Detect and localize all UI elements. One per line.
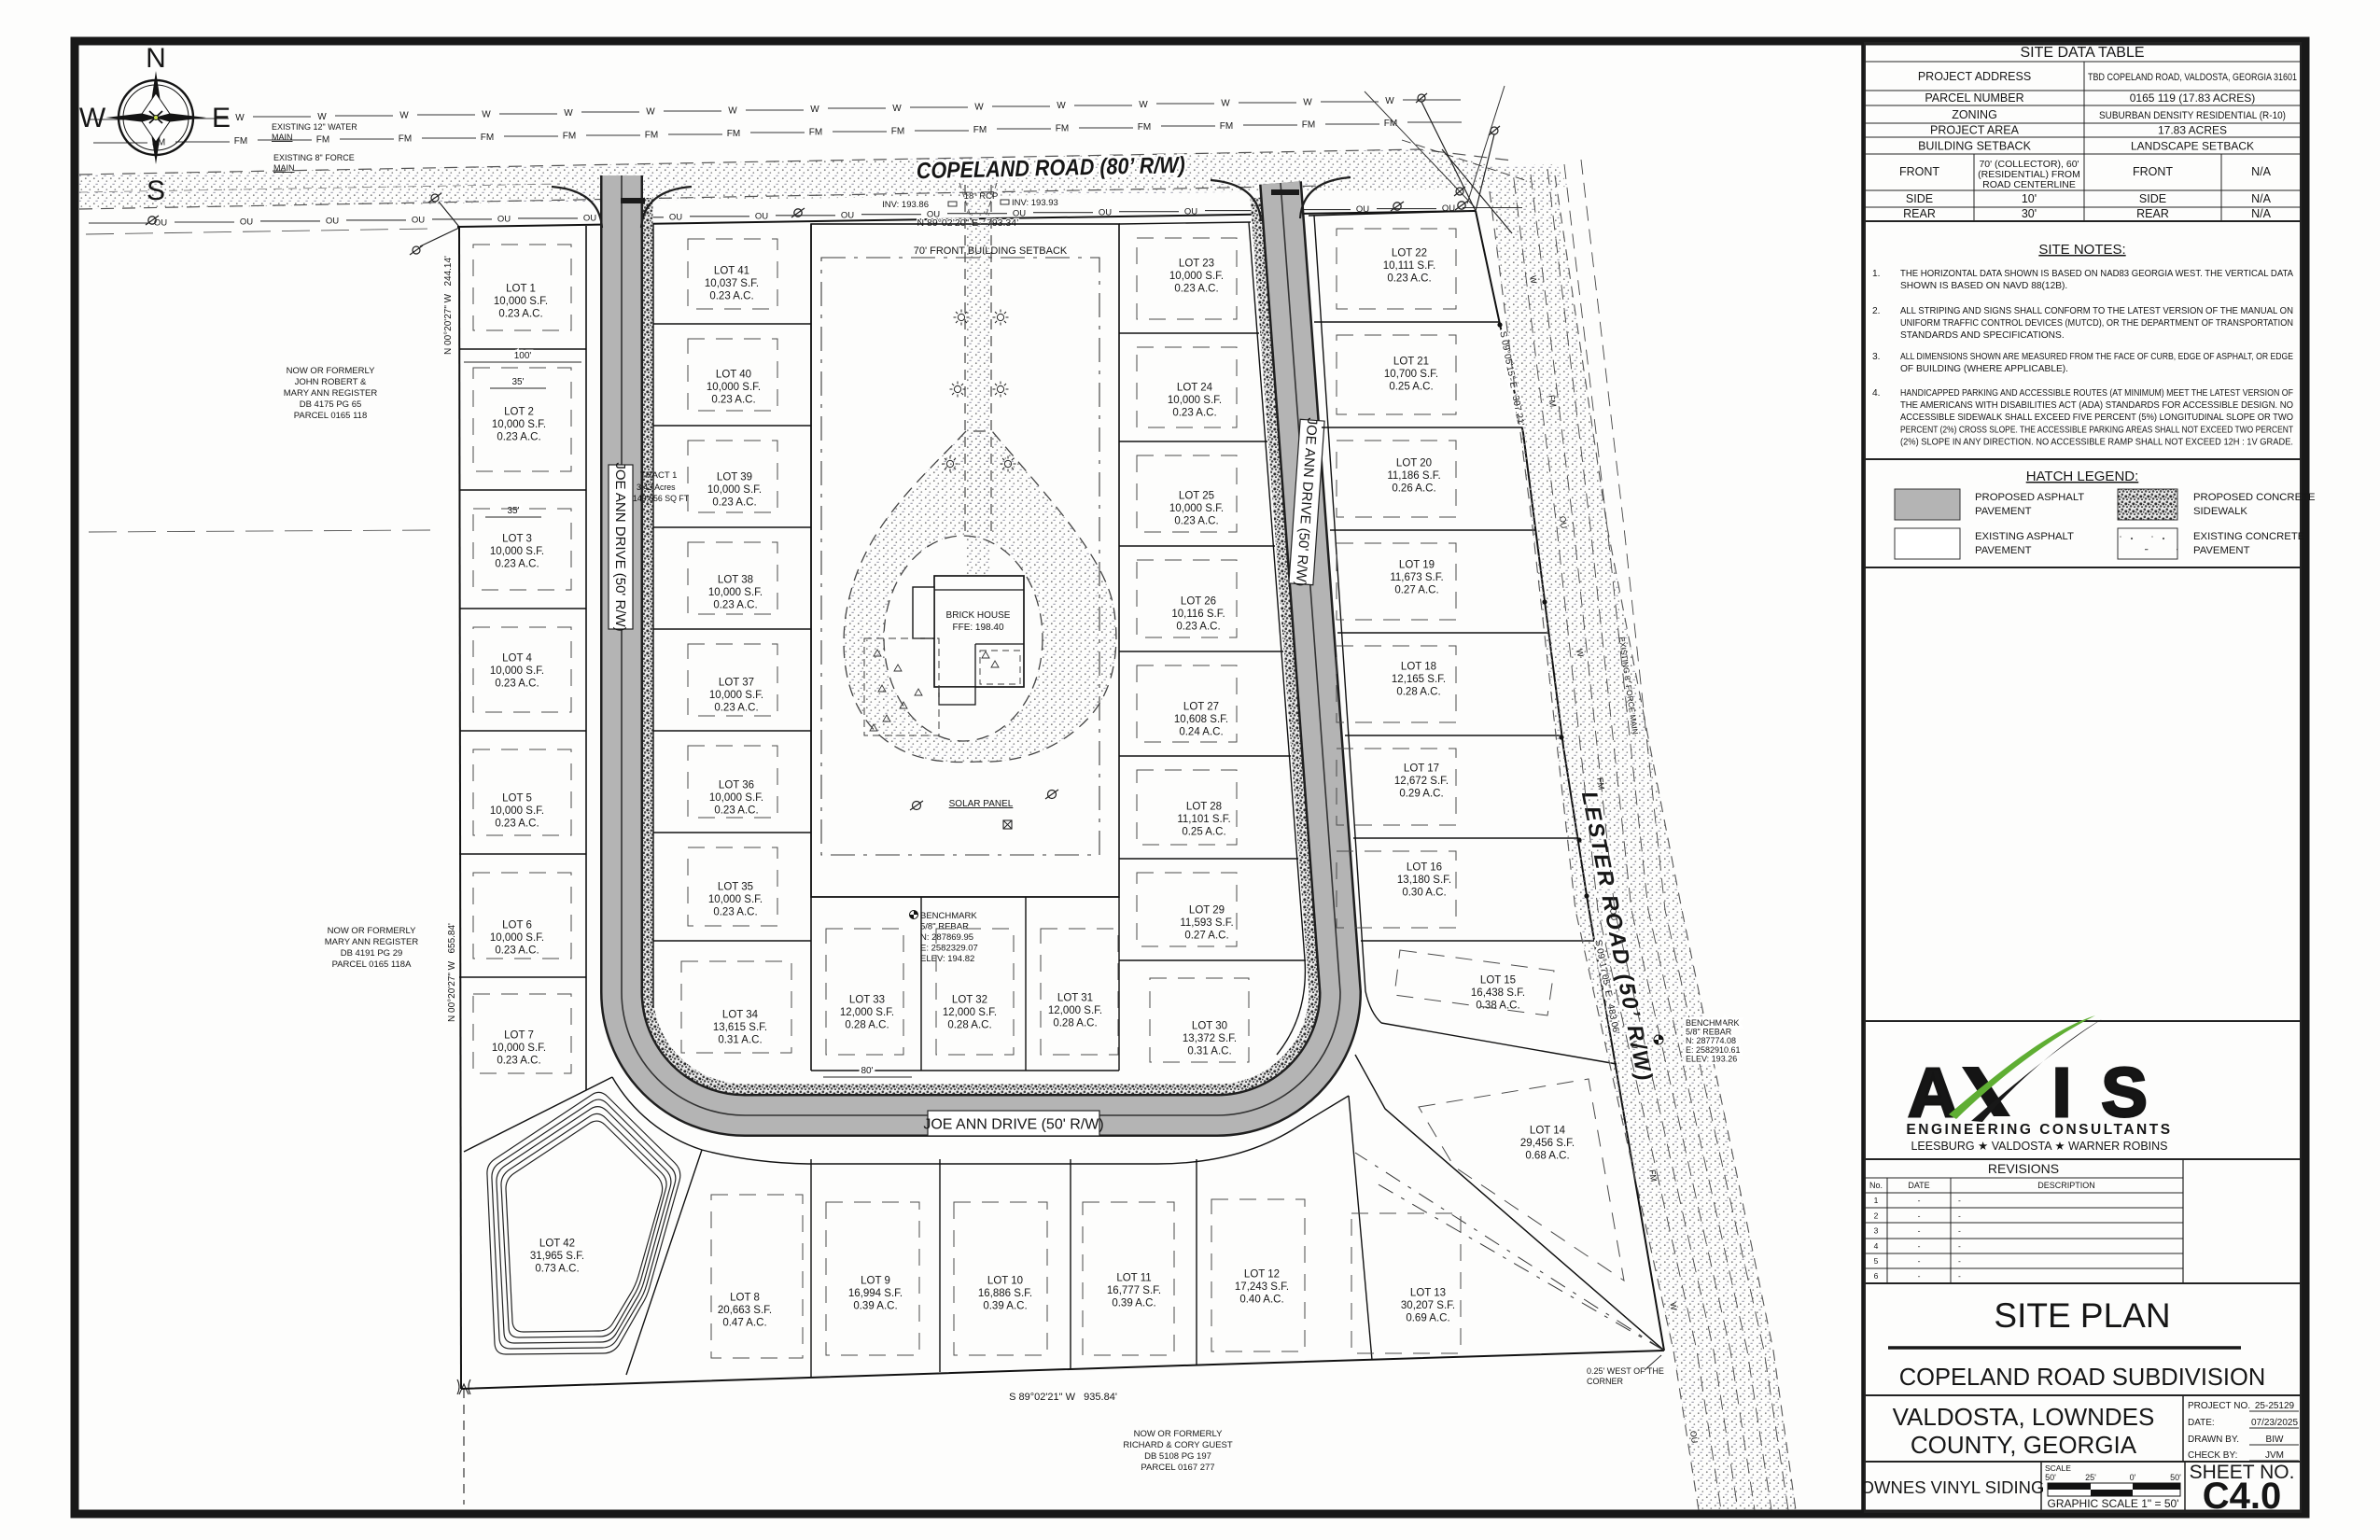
svg-text:INV: 193.93: INV: 193.93 bbox=[1012, 198, 1058, 208]
svg-text:16,777 S.F.: 16,777 S.F. bbox=[1107, 1285, 1161, 1296]
svg-text:LOT 14: LOT 14 bbox=[1530, 1126, 1566, 1137]
svg-text:0.24 A.C.: 0.24 A.C. bbox=[1179, 727, 1223, 738]
svg-text:PAVEMENT: PAVEMENT bbox=[2193, 545, 2250, 556]
svg-text:OU: OU bbox=[1558, 515, 1569, 529]
svg-text:FM: FM bbox=[891, 126, 904, 136]
svg-text:DB 5108 PG 197: DB 5108 PG 197 bbox=[1144, 1451, 1211, 1462]
svg-text:0.25 A.C.: 0.25 A.C. bbox=[1389, 382, 1433, 393]
svg-text:-: - bbox=[1958, 1256, 1961, 1266]
svg-text:-: - bbox=[1958, 1271, 1961, 1281]
svg-text:0.23 A.C.: 0.23 A.C. bbox=[497, 432, 540, 443]
svg-text:W: W bbox=[1221, 99, 1230, 109]
svg-text:FM: FM bbox=[1302, 120, 1315, 131]
svg-text:W: W bbox=[1139, 100, 1148, 110]
svg-text:CHECK BY:: CHECK BY: bbox=[2188, 1450, 2237, 1461]
svg-text:EXISTING ASPHALT: EXISTING ASPHALT bbox=[1975, 531, 2074, 542]
svg-text:FM: FM bbox=[316, 135, 329, 146]
svg-text:NOW OR FORMERLY: NOW OR FORMERLY bbox=[328, 926, 416, 936]
svg-text:STANDARDS AND SPECIFICATIONS.: STANDARDS AND SPECIFICATIONS. bbox=[1900, 330, 2065, 341]
svg-text:HANDICAPPED PARKING AND ACCESS: HANDICAPPED PARKING AND ACCESSIBLE ROUTE… bbox=[1900, 388, 2293, 399]
svg-text:50': 50' bbox=[2170, 1473, 2181, 1482]
svg-text:SIDE: SIDE bbox=[1906, 192, 1933, 205]
svg-text:LOT 7: LOT 7 bbox=[504, 1030, 534, 1042]
svg-text:31,965 S.F.: 31,965 S.F. bbox=[530, 1251, 584, 1262]
svg-text:LOT 27: LOT 27 bbox=[1183, 702, 1219, 713]
svg-text:SITE PLAN: SITE PLAN bbox=[1994, 1296, 2170, 1335]
svg-text:0165 119 (17.83 ACRES): 0165 119 (17.83 ACRES) bbox=[2130, 91, 2256, 105]
svg-text:ZONING: ZONING bbox=[1952, 108, 1997, 121]
svg-text:LOT 11: LOT 11 bbox=[1116, 1273, 1151, 1284]
svg-text:0.73 A.C.: 0.73 A.C. bbox=[535, 1264, 579, 1275]
svg-text:FM: FM bbox=[727, 129, 740, 139]
svg-text:0.39 A.C.: 0.39 A.C. bbox=[1112, 1298, 1155, 1309]
svg-text:BRICK HOUSE: BRICK HOUSE bbox=[946, 610, 1011, 621]
svg-text:SOLAR PANEL: SOLAR PANEL bbox=[949, 799, 1014, 809]
svg-text:S: S bbox=[2101, 1054, 2147, 1131]
svg-text:DATE:: DATE: bbox=[2188, 1418, 2215, 1428]
svg-text:0.68 A.C.: 0.68 A.C. bbox=[1525, 1151, 1569, 1162]
svg-text:LOT 19: LOT 19 bbox=[1399, 560, 1435, 571]
svg-text:HATCH LEGEND:: HATCH LEGEND: bbox=[2026, 469, 2139, 484]
svg-text:0.27 A.C.: 0.27 A.C. bbox=[1394, 585, 1438, 596]
svg-text:N 00°20'27" W 655.84': N 00°20'27" W 655.84' bbox=[447, 923, 457, 1022]
svg-text:FM: FM bbox=[1056, 124, 1069, 134]
svg-text:W: W bbox=[646, 107, 655, 118]
svg-text:70' FRONT BUILDING SETBACK: 70' FRONT BUILDING SETBACK bbox=[914, 245, 1068, 257]
svg-text:N 00°20'27" W 244.14': N 00°20'27" W 244.14' bbox=[443, 256, 454, 355]
svg-text:3.: 3. bbox=[1872, 352, 1881, 362]
svg-text:N: 287774.08: N: 287774.08 bbox=[1686, 1036, 1736, 1045]
svg-text:17.83 ACRES: 17.83 ACRES bbox=[2158, 124, 2227, 137]
svg-text:149,656 SQ FT: 149,656 SQ FT bbox=[633, 494, 690, 503]
svg-text:JVM: JVM bbox=[2265, 1450, 2284, 1461]
svg-text:RICHARD & CORY GUEST: RICHARD & CORY GUEST bbox=[1123, 1440, 1233, 1450]
svg-text:OU: OU bbox=[1608, 907, 1619, 921]
svg-text:0.38 A.C.: 0.38 A.C. bbox=[1476, 1001, 1519, 1012]
svg-text:SHOWN IS BASED ON NAVD 88(12B): SHOWN IS BASED ON NAVD 88(12B). bbox=[1900, 281, 2067, 291]
svg-text:0.39 A.C.: 0.39 A.C. bbox=[983, 1301, 1027, 1312]
svg-text:10,700 S.F.: 10,700 S.F. bbox=[1384, 369, 1438, 380]
svg-text:2.: 2. bbox=[1872, 306, 1881, 316]
svg-text:(2%) SLOPE IN ANY DIRECTION. N: (2%) SLOPE IN ANY DIRECTION. NO ACCESSIB… bbox=[1900, 437, 2293, 447]
svg-text:N/A: N/A bbox=[2251, 192, 2272, 205]
svg-text:1.: 1. bbox=[1872, 269, 1881, 279]
svg-text:10,037 S.F.: 10,037 S.F. bbox=[705, 278, 759, 289]
svg-text:0.31 A.C.: 0.31 A.C. bbox=[1187, 1046, 1231, 1057]
svg-text:PROPOSED CONCRETE: PROPOSED CONCRETE bbox=[2193, 492, 2316, 503]
svg-text:4: 4 bbox=[1874, 1241, 1879, 1251]
svg-text:LOT 10: LOT 10 bbox=[987, 1276, 1023, 1287]
svg-text:-: - bbox=[1958, 1226, 1961, 1236]
svg-text:MARY ANN REGISTER: MARY ANN REGISTER bbox=[284, 388, 378, 399]
svg-text:0.69 A.C.: 0.69 A.C. bbox=[1406, 1313, 1449, 1324]
svg-text:10,000 S.F.: 10,000 S.F. bbox=[1169, 503, 1224, 514]
svg-text:MARY ANN REGISTER: MARY ANN REGISTER bbox=[325, 937, 419, 947]
svg-text:FM: FM bbox=[645, 130, 658, 140]
svg-text:11,593 S.F.: 11,593 S.F. bbox=[1180, 917, 1233, 929]
svg-text:FM: FM bbox=[234, 136, 247, 147]
svg-text:10,000 S.F.: 10,000 S.F. bbox=[492, 1043, 546, 1054]
svg-text:LOT 31: LOT 31 bbox=[1057, 993, 1093, 1004]
svg-text:0.26 A.C.: 0.26 A.C. bbox=[1392, 483, 1435, 495]
svg-text:FM: FM bbox=[563, 132, 576, 142]
svg-text:LOT 41: LOT 41 bbox=[714, 266, 749, 277]
svg-text:W: W bbox=[974, 103, 984, 113]
svg-text:No.: No. bbox=[1869, 1181, 1883, 1190]
svg-text:LOT 21: LOT 21 bbox=[1393, 357, 1429, 368]
svg-text:EXISTING 12" WATER: EXISTING 12" WATER bbox=[272, 122, 357, 132]
svg-text:0.47 A.C.: 0.47 A.C. bbox=[722, 1318, 766, 1329]
svg-text:0.31 A.C.: 0.31 A.C. bbox=[718, 1035, 762, 1046]
svg-text:10,000 S.F.: 10,000 S.F. bbox=[708, 587, 763, 598]
svg-text:ALL DIMENSIONS SHOWN ARE MEASU: ALL DIMENSIONS SHOWN ARE MEASURED FROM T… bbox=[1900, 352, 2293, 362]
svg-text:NOW OR FORMERLY: NOW OR FORMERLY bbox=[1134, 1429, 1223, 1439]
svg-text:SITE DATA TABLE: SITE DATA TABLE bbox=[2020, 45, 2144, 61]
svg-text:INV: 193.86: INV: 193.86 bbox=[882, 200, 929, 210]
svg-text:ELEV: 194.82: ELEV: 194.82 bbox=[920, 954, 974, 964]
svg-text:N: N bbox=[146, 43, 166, 74]
svg-text:6: 6 bbox=[1874, 1271, 1879, 1281]
svg-text:TRACT 1: TRACT 1 bbox=[640, 470, 677, 481]
svg-text:LOT 12: LOT 12 bbox=[1244, 1269, 1280, 1281]
svg-text:10,000 S.F.: 10,000 S.F. bbox=[490, 805, 544, 817]
svg-text:100': 100' bbox=[514, 351, 532, 361]
svg-text:LOT 34: LOT 34 bbox=[722, 1010, 759, 1021]
svg-text:5/8" REBAR: 5/8" REBAR bbox=[1686, 1028, 1732, 1037]
svg-text:LOT 18: LOT 18 bbox=[1401, 662, 1436, 673]
svg-text:-: - bbox=[1958, 1211, 1961, 1220]
svg-text:17,243 S.F.: 17,243 S.F. bbox=[1235, 1281, 1289, 1293]
svg-text:DRAWN BY.: DRAWN BY. bbox=[2188, 1435, 2239, 1445]
svg-text:PROJECT AREA: PROJECT AREA bbox=[1930, 124, 2020, 137]
svg-text:PARCEL 0165 118: PARCEL 0165 118 bbox=[294, 411, 368, 421]
svg-text:FRONT: FRONT bbox=[2133, 165, 2173, 178]
svg-text:SIDEWALK: SIDEWALK bbox=[2193, 506, 2247, 517]
svg-text:W: W bbox=[235, 113, 245, 123]
svg-text:10,000 S.F.: 10,000 S.F. bbox=[709, 690, 763, 701]
svg-text:W: W bbox=[1057, 101, 1066, 111]
svg-text:ALL STRIPING AND SIGNS SHALL C: ALL STRIPING AND SIGNS SHALL CONFORM TO … bbox=[1900, 306, 2293, 316]
svg-text:50': 50' bbox=[2045, 1473, 2056, 1482]
svg-text:LOT 39: LOT 39 bbox=[717, 472, 752, 483]
svg-text:12,165 S.F.: 12,165 S.F. bbox=[1392, 674, 1446, 685]
svg-text:0.23 A.C.: 0.23 A.C. bbox=[497, 1056, 540, 1067]
svg-text:5/8" REBAR: 5/8" REBAR bbox=[920, 922, 969, 932]
svg-text:-: - bbox=[1958, 1196, 1961, 1205]
svg-text:C4.0: C4.0 bbox=[2203, 1476, 2282, 1517]
svg-text:-: - bbox=[1918, 1196, 1921, 1205]
svg-text:SITE NOTES:: SITE NOTES: bbox=[2038, 242, 2125, 258]
svg-text:FM: FM bbox=[973, 125, 987, 135]
svg-text:FM: FM bbox=[1595, 777, 1606, 790]
svg-text:25-25129: 25-25129 bbox=[2255, 1401, 2295, 1411]
svg-text:LOT 32: LOT 32 bbox=[952, 995, 987, 1006]
svg-text:1: 1 bbox=[1874, 1196, 1879, 1205]
svg-text:16,994 S.F.: 16,994 S.F. bbox=[848, 1288, 903, 1299]
svg-text:FM: FM bbox=[1647, 1169, 1659, 1182]
svg-text:FFE: 198.40: FFE: 198.40 bbox=[952, 623, 1003, 633]
svg-text:REAR: REAR bbox=[2136, 207, 2169, 220]
svg-text:0.23 A.C.: 0.23 A.C. bbox=[1174, 516, 1218, 527]
svg-text:PARCEL 0165 118A: PARCEL 0165 118A bbox=[332, 959, 413, 970]
svg-text:0.23 A.C.: 0.23 A.C. bbox=[713, 600, 757, 611]
svg-text:ENGINEERING CONSULTANTS: ENGINEERING CONSULTANTS bbox=[1906, 1122, 2172, 1138]
svg-text:10,111 S.F.: 10,111 S.F. bbox=[1383, 260, 1435, 272]
svg-text:LOT 24: LOT 24 bbox=[1177, 383, 1213, 394]
svg-text:10,116 S.F.: 10,116 S.F. bbox=[1171, 609, 1225, 620]
svg-text:LOT 2: LOT 2 bbox=[504, 407, 534, 418]
svg-text:BENCHMARK: BENCHMARK bbox=[1686, 1018, 1740, 1028]
svg-text:OU: OU bbox=[841, 210, 854, 220]
svg-text:LEESBURG ★ VALDOSTA ★ WARNER R: LEESBURG ★ VALDOSTA ★ WARNER ROBINS bbox=[1911, 1140, 2167, 1153]
svg-text:LOT 35: LOT 35 bbox=[718, 882, 753, 893]
svg-text:16,438 S.F.: 16,438 S.F. bbox=[1471, 987, 1525, 999]
svg-text:LOT 4: LOT 4 bbox=[502, 653, 532, 665]
svg-text:E: E bbox=[212, 103, 231, 133]
svg-text:DATE: DATE bbox=[1908, 1181, 1929, 1190]
svg-text:ROAD CENTERLINE: ROAD CENTERLINE bbox=[1982, 179, 2076, 190]
svg-text:0.23 A.C.: 0.23 A.C. bbox=[714, 805, 758, 817]
svg-text:-: - bbox=[1918, 1271, 1921, 1281]
svg-text:10,000 S.F.: 10,000 S.F. bbox=[492, 419, 546, 430]
svg-text:LOT 22: LOT 22 bbox=[1392, 248, 1427, 259]
svg-text:LOT 8: LOT 8 bbox=[730, 1293, 760, 1304]
svg-text:CORNER: CORNER bbox=[1587, 1377, 1624, 1386]
svg-text:10,000 S.F.: 10,000 S.F. bbox=[490, 546, 544, 557]
svg-text:0.28 A.C.: 0.28 A.C. bbox=[1396, 687, 1440, 698]
svg-text:0.23 A.C.: 0.23 A.C. bbox=[712, 497, 756, 509]
svg-text:REVISIONS: REVISIONS bbox=[1988, 1161, 2059, 1176]
svg-text:W: W bbox=[317, 112, 327, 122]
svg-text:12,000 S.F.: 12,000 S.F. bbox=[943, 1007, 997, 1018]
svg-text:OF BUILDING (WHERE APPLICABLE): OF BUILDING (WHERE APPLICABLE). bbox=[1900, 364, 2068, 374]
svg-text:0': 0' bbox=[2130, 1473, 2136, 1482]
svg-text:REAR: REAR bbox=[1903, 207, 1936, 220]
svg-text:-: - bbox=[1918, 1211, 1921, 1220]
svg-text:S: S bbox=[147, 175, 165, 206]
svg-text:W: W bbox=[1385, 96, 1394, 106]
svg-text:LOT 29: LOT 29 bbox=[1189, 905, 1225, 917]
svg-text:11,101 S.F.: 11,101 S.F. bbox=[1177, 814, 1230, 825]
svg-text:11,673 S.F.: 11,673 S.F. bbox=[1390, 572, 1443, 583]
svg-text:35': 35' bbox=[511, 377, 524, 387]
svg-text:0.23 A.C.: 0.23 A.C. bbox=[495, 559, 539, 570]
svg-text:N: 287869.95: N: 287869.95 bbox=[920, 932, 973, 943]
svg-text:LOT 13: LOT 13 bbox=[1410, 1288, 1446, 1299]
svg-text:OU: OU bbox=[326, 217, 339, 227]
svg-text:10,000 S.F.: 10,000 S.F. bbox=[1168, 395, 1222, 406]
svg-text:10,000 S.F.: 10,000 S.F. bbox=[494, 296, 548, 307]
svg-text:10,000 S.F.: 10,000 S.F. bbox=[707, 382, 761, 393]
svg-text:0.23 A.C.: 0.23 A.C. bbox=[714, 703, 758, 714]
svg-text:0.23 A.C.: 0.23 A.C. bbox=[1387, 273, 1431, 285]
svg-text:0.40 A.C.: 0.40 A.C. bbox=[1239, 1295, 1283, 1306]
svg-text:OU: OU bbox=[240, 217, 253, 228]
svg-text:SUBURBAN DENSITY RESIDENTIAL (: SUBURBAN DENSITY RESIDENTIAL (R-10) bbox=[2099, 110, 2286, 121]
svg-text:10,000 S.F.: 10,000 S.F. bbox=[709, 792, 763, 804]
svg-text:LOT 3: LOT 3 bbox=[502, 534, 532, 545]
svg-text:13,372 S.F.: 13,372 S.F. bbox=[1183, 1033, 1237, 1044]
svg-text:OU: OU bbox=[1688, 1430, 1700, 1444]
svg-text:0.23 A.C.: 0.23 A.C. bbox=[709, 291, 753, 302]
svg-text:0.23 A.C.: 0.23 A.C. bbox=[495, 945, 539, 957]
svg-text:2: 2 bbox=[1874, 1211, 1879, 1220]
svg-text:THE HORIZONTAL DATA SHOWN IS B: THE HORIZONTAL DATA SHOWN IS BASED ON NA… bbox=[1900, 269, 2293, 279]
svg-text:10': 10' bbox=[2022, 192, 2037, 205]
svg-text:NOW OR FORMERLY: NOW OR FORMERLY bbox=[287, 366, 375, 376]
svg-text:LOT 20: LOT 20 bbox=[1396, 458, 1432, 469]
svg-text:LOT 25: LOT 25 bbox=[1179, 491, 1214, 502]
svg-text:VALDOSTA, LOWNDES: VALDOSTA, LOWNDES bbox=[1893, 1403, 2155, 1431]
svg-text:PARCEL 0167 277: PARCEL 0167 277 bbox=[1141, 1463, 1214, 1473]
svg-text:80': 80' bbox=[861, 1066, 873, 1076]
svg-text:3.43 Acres: 3.43 Acres bbox=[637, 483, 676, 492]
svg-text:BIW: BIW bbox=[2266, 1435, 2284, 1445]
svg-text:JOHN ROBERT &: JOHN ROBERT & bbox=[295, 377, 367, 387]
svg-text:LOT 1: LOT 1 bbox=[506, 284, 536, 295]
svg-text:0.23 A.C.: 0.23 A.C. bbox=[498, 309, 542, 320]
svg-text:07/23/2025: 07/23/2025 bbox=[2251, 1418, 2298, 1428]
svg-text:W: W bbox=[79, 103, 106, 133]
svg-text:LOT 16: LOT 16 bbox=[1407, 862, 1442, 874]
svg-text:MAIN: MAIN bbox=[273, 163, 295, 173]
svg-text:MAIN: MAIN bbox=[272, 133, 293, 142]
svg-text:10,000 S.F.: 10,000 S.F. bbox=[490, 932, 544, 944]
svg-text:OU: OU bbox=[412, 216, 425, 226]
svg-text:LOT 26: LOT 26 bbox=[1181, 596, 1216, 608]
svg-text:0.23 A.C.: 0.23 A.C. bbox=[1172, 408, 1216, 419]
svg-text:0.28 A.C.: 0.28 A.C. bbox=[1053, 1018, 1097, 1029]
svg-text:10,608 S.F.: 10,608 S.F. bbox=[1174, 714, 1228, 725]
svg-text:E: 2582910.61: E: 2582910.61 bbox=[1686, 1045, 1741, 1055]
svg-text:0.25' WEST OF THE: 0.25' WEST OF THE bbox=[1587, 1366, 1664, 1376]
svg-text:COPELAND ROAD SUBDIVISION: COPELAND ROAD SUBDIVISION bbox=[1899, 1365, 2266, 1391]
svg-text:W: W bbox=[892, 104, 902, 114]
svg-text:10,000 S.F.: 10,000 S.F. bbox=[1169, 271, 1224, 282]
svg-text:W: W bbox=[482, 109, 491, 119]
svg-text:W: W bbox=[1303, 97, 1312, 107]
svg-text:11,186 S.F.: 11,186 S.F. bbox=[1387, 470, 1440, 482]
svg-text:FRONT: FRONT bbox=[1899, 165, 1939, 178]
svg-text:THE AMERICANS WITH DISABILITIE: THE AMERICANS WITH DISABILITIES ACT (ADA… bbox=[1900, 400, 2293, 411]
svg-text:OU: OU bbox=[583, 213, 596, 223]
svg-text:0.29 A.C.: 0.29 A.C. bbox=[1399, 789, 1443, 800]
svg-text:FM: FM bbox=[399, 133, 412, 144]
svg-text:FM: FM bbox=[1220, 121, 1233, 132]
svg-text:A: A bbox=[1908, 1054, 1957, 1131]
svg-text:COUNTY, GEORGIA: COUNTY, GEORGIA bbox=[1911, 1431, 2137, 1459]
svg-text:LOT 5: LOT 5 bbox=[502, 793, 532, 805]
svg-text:LANDSCAPE SETBACK: LANDSCAPE SETBACK bbox=[2131, 140, 2254, 153]
svg-text:EXISTING 8" FORCE: EXISTING 8" FORCE bbox=[273, 153, 355, 162]
svg-text:LOT 33: LOT 33 bbox=[849, 995, 885, 1006]
svg-text:30': 30' bbox=[2022, 207, 2037, 220]
svg-text:I: I bbox=[2052, 1054, 2072, 1131]
svg-text:-: - bbox=[1918, 1226, 1921, 1236]
svg-text:FM: FM bbox=[1547, 394, 1558, 407]
svg-text:LOT 17: LOT 17 bbox=[1404, 763, 1439, 775]
svg-text:LOT 9: LOT 9 bbox=[861, 1276, 890, 1287]
svg-text:16,886 S.F.: 16,886 S.F. bbox=[978, 1288, 1032, 1299]
svg-text:10,000 S.F.: 10,000 S.F. bbox=[707, 484, 762, 496]
svg-text:0.23 A.C.: 0.23 A.C. bbox=[711, 395, 755, 406]
svg-text:12,672 S.F.: 12,672 S.F. bbox=[1394, 776, 1449, 787]
svg-text:SCALE: SCALE bbox=[2045, 1463, 2071, 1473]
svg-text:12,000 S.F.: 12,000 S.F. bbox=[1048, 1005, 1102, 1016]
svg-text:UNIFORM TRAFFIC CONTROL DEVICE: UNIFORM TRAFFIC CONTROL DEVICES (MUTCD),… bbox=[1900, 318, 2293, 329]
svg-text:S 89°02'21" W 935.84': S 89°02'21" W 935.84' bbox=[1009, 1392, 1117, 1403]
svg-text:GRAPHIC SCALE 1" = 50': GRAPHIC SCALE 1" = 50' bbox=[2048, 1497, 2179, 1510]
svg-text:FM: FM bbox=[1138, 122, 1151, 133]
svg-text:0.23 A.C.: 0.23 A.C. bbox=[713, 907, 757, 918]
svg-text:-: - bbox=[1918, 1241, 1921, 1251]
svg-text:W: W bbox=[728, 105, 737, 116]
svg-text:30,207 S.F.: 30,207 S.F. bbox=[1401, 1300, 1455, 1311]
svg-text:13,615 S.F.: 13,615 S.F. bbox=[713, 1022, 767, 1033]
svg-text:PAVEMENT: PAVEMENT bbox=[1975, 545, 2032, 556]
svg-text:0.23 A.C.: 0.23 A.C. bbox=[495, 819, 539, 830]
svg-text:ACCESSIBLE SIDEWALK SHALL EXCE: ACCESSIBLE SIDEWALK SHALL EXCEED FIVE PE… bbox=[1900, 413, 2293, 423]
svg-text:LOT 30: LOT 30 bbox=[1192, 1021, 1227, 1032]
svg-text:BUILDING SETBACK: BUILDING SETBACK bbox=[1918, 140, 2032, 153]
svg-text:4.: 4. bbox=[1872, 388, 1881, 399]
svg-text:W: W bbox=[399, 111, 409, 121]
svg-text:10,000 S.F.: 10,000 S.F. bbox=[490, 665, 544, 677]
svg-text:0.28 A.C.: 0.28 A.C. bbox=[845, 1020, 889, 1031]
svg-text:PROJECT ADDRESS: PROJECT ADDRESS bbox=[1918, 70, 2031, 83]
svg-text:E: 2582329.07: E: 2582329.07 bbox=[920, 944, 978, 954]
svg-text:PROJECT NO.: PROJECT NO. bbox=[2188, 1401, 2250, 1411]
svg-text:0.25 A.C.: 0.25 A.C. bbox=[1182, 827, 1225, 838]
svg-text:0.39 A.C.: 0.39 A.C. bbox=[853, 1301, 897, 1312]
svg-text:N/A: N/A bbox=[2251, 207, 2272, 220]
svg-text:W: W bbox=[810, 105, 819, 115]
svg-text:12,000 S.F.: 12,000 S.F. bbox=[840, 1007, 894, 1018]
svg-text:35': 35' bbox=[507, 506, 519, 516]
svg-text:LOT 40: LOT 40 bbox=[716, 370, 751, 381]
svg-text:LOT 36: LOT 36 bbox=[719, 780, 754, 791]
svg-text:3: 3 bbox=[1874, 1226, 1879, 1236]
svg-text:LOT 38: LOT 38 bbox=[718, 575, 753, 586]
svg-text:N/A: N/A bbox=[2251, 165, 2272, 178]
svg-text:DB 4191 PG 29: DB 4191 PG 29 bbox=[341, 948, 403, 959]
svg-text:OU: OU bbox=[669, 212, 682, 222]
svg-text:FM: FM bbox=[809, 128, 822, 138]
svg-text:29,456 S.F.: 29,456 S.F. bbox=[1520, 1138, 1575, 1149]
svg-text:LOT 37: LOT 37 bbox=[719, 678, 754, 689]
svg-text:0.28 A.C.: 0.28 A.C. bbox=[947, 1020, 991, 1031]
svg-text:LOT 42: LOT 42 bbox=[539, 1239, 575, 1250]
svg-text:SIDE: SIDE bbox=[2139, 192, 2166, 205]
svg-text:JOE ANN DRIVE (50' R/W): JOE ANN DRIVE (50' R/W) bbox=[612, 462, 628, 631]
svg-text:LOT 15: LOT 15 bbox=[1480, 975, 1516, 987]
svg-text:OU: OU bbox=[755, 211, 768, 221]
svg-text:OWNES VINYL SIDING: OWNES VINYL SIDING bbox=[1861, 1477, 2045, 1497]
svg-text:PERCENT (2%) CROSS SLOPE. THE: PERCENT (2%) CROSS SLOPE. THE ACCESSIBLE… bbox=[1900, 425, 2293, 435]
svg-text:DB 4175 PG 65: DB 4175 PG 65 bbox=[300, 399, 362, 410]
svg-text:PARCEL NUMBER: PARCEL NUMBER bbox=[1925, 91, 2023, 105]
svg-text:13,180 S.F.: 13,180 S.F. bbox=[1397, 875, 1451, 886]
svg-text:0.27 A.C.: 0.27 A.C. bbox=[1184, 931, 1228, 942]
svg-text:W: W bbox=[564, 108, 573, 119]
svg-text:-: - bbox=[1958, 1241, 1961, 1251]
svg-text:OU: OU bbox=[497, 215, 511, 225]
svg-text:BENCHMARK: BENCHMARK bbox=[920, 911, 977, 921]
svg-text:5: 5 bbox=[1874, 1256, 1879, 1266]
svg-text:25': 25' bbox=[2085, 1473, 2096, 1482]
svg-text:LOT 28: LOT 28 bbox=[1186, 802, 1222, 813]
svg-text:0.23 A.C.: 0.23 A.C. bbox=[1174, 284, 1218, 295]
